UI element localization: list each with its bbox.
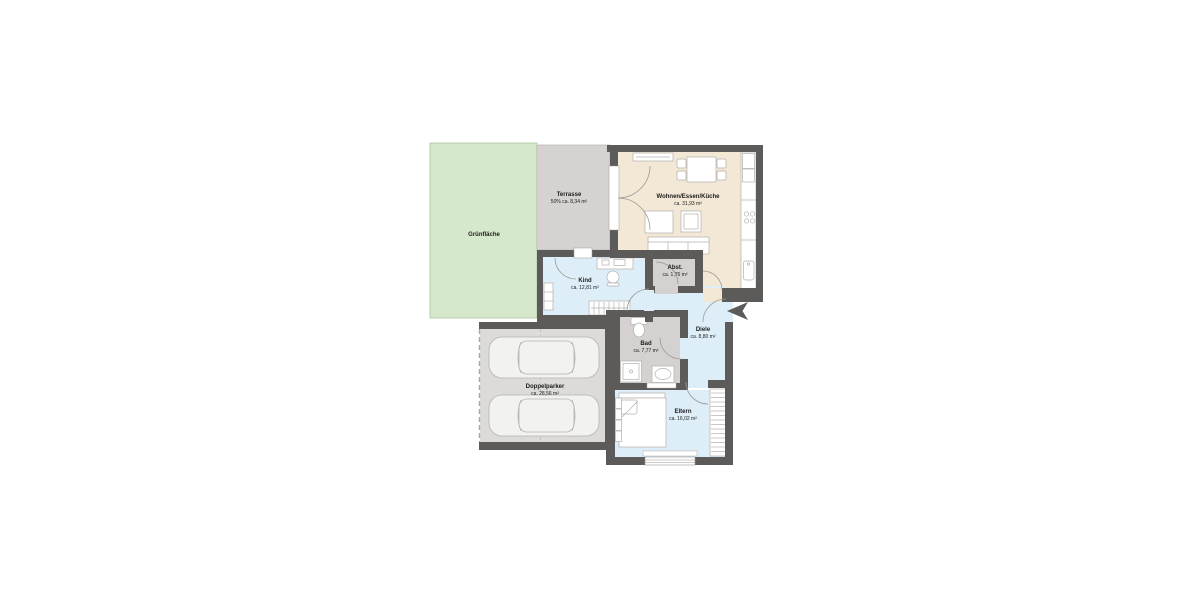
wall — [479, 322, 613, 329]
label-doppelparker-area: ca. 28,56 m² — [531, 391, 559, 397]
wall — [695, 457, 733, 465]
label-eltern-area: ca. 16,02 m² — [669, 416, 697, 422]
sideboard — [633, 153, 673, 161]
wall — [610, 230, 618, 250]
bad-niche — [647, 383, 676, 388]
room-gruenflaeche — [430, 143, 537, 318]
wall — [537, 250, 543, 322]
label-bad: Bad — [640, 341, 652, 347]
label-diele: Diele — [696, 327, 711, 333]
label-diele-area: ca. 8,80 m² — [690, 334, 715, 340]
wall — [479, 442, 613, 450]
wardrobe-eltern — [710, 389, 726, 456]
label-doppelparker: Doppelparker — [526, 384, 565, 390]
label-gruenflaeche: Grünfläche — [468, 232, 500, 238]
kitchen-counter — [741, 152, 756, 289]
wall — [708, 380, 725, 388]
floor-plan: Grünfläche Terrasse 50% ca. 8,34 m² Wohn… — [0, 0, 1200, 600]
wall — [610, 152, 618, 166]
shower-icon — [621, 361, 642, 382]
washbasin-icon — [652, 366, 674, 383]
car-icon — [489, 395, 599, 436]
wall — [756, 145, 763, 302]
label-kind-area: ca. 12,81 m² — [571, 285, 599, 291]
wall — [543, 250, 574, 257]
floor-plan-svg: Grünfläche Terrasse 50% ca. 8,34 m² Wohn… — [0, 0, 1200, 600]
label-terrasse-area: 50% ca. 8,34 m² — [551, 199, 588, 205]
wall — [722, 288, 763, 302]
wall — [607, 145, 763, 152]
label-bad-area: ca. 7,77 m² — [633, 348, 658, 354]
wall — [610, 250, 645, 258]
wall — [605, 322, 613, 450]
label-abst-area: ca. 1,76 m² — [662, 272, 687, 278]
car-icon — [489, 337, 599, 378]
label-eltern: Eltern — [674, 409, 691, 415]
armchair — [681, 211, 701, 232]
label-kind: Kind — [578, 278, 592, 284]
desk — [597, 258, 633, 269]
wall — [645, 250, 653, 289]
desk-chair — [607, 271, 619, 286]
eltern-window — [643, 451, 697, 465]
wall — [725, 322, 733, 465]
shelf-kind — [544, 283, 553, 310]
label-wohnen: Wohnen/Essen/Küche — [657, 194, 721, 200]
wall — [695, 250, 703, 293]
wall — [645, 311, 653, 322]
label-abst: Abst. — [668, 265, 683, 271]
label-wohnen-area: ca. 31,93 m² — [674, 201, 702, 207]
sink-icon — [744, 261, 755, 280]
bedside-shelf — [616, 398, 622, 442]
bed — [619, 393, 666, 447]
wall — [592, 250, 610, 257]
wall — [606, 457, 645, 465]
label-terrasse: Terrasse — [557, 192, 582, 198]
